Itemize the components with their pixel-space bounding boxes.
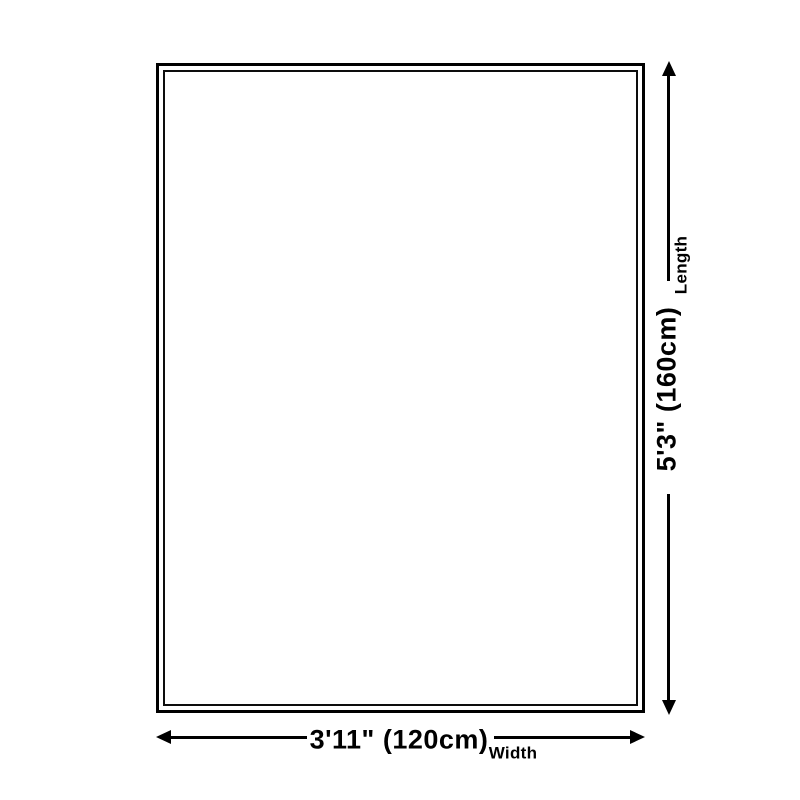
rug-inner-outline <box>163 70 638 706</box>
arrow-right-icon <box>630 730 645 744</box>
length-dimension-line-upper <box>667 75 670 281</box>
width-dimension-line-right <box>494 736 632 739</box>
arrow-up-icon <box>662 61 676 76</box>
rug-size-diagram: Length 5'3" (160cm) 3'11" (120cm) Width <box>0 0 800 800</box>
width-dimension-line-left <box>169 736 307 739</box>
rug-outline <box>156 63 645 713</box>
width-measurement: 3'11" (120cm) <box>310 727 489 754</box>
arrow-down-icon <box>662 700 676 715</box>
length-dimension-line-lower <box>667 494 670 702</box>
length-axis-label: Length <box>673 236 690 294</box>
width-axis-label: Width <box>489 745 538 762</box>
length-measurement: 5'3" (160cm) <box>654 307 681 472</box>
